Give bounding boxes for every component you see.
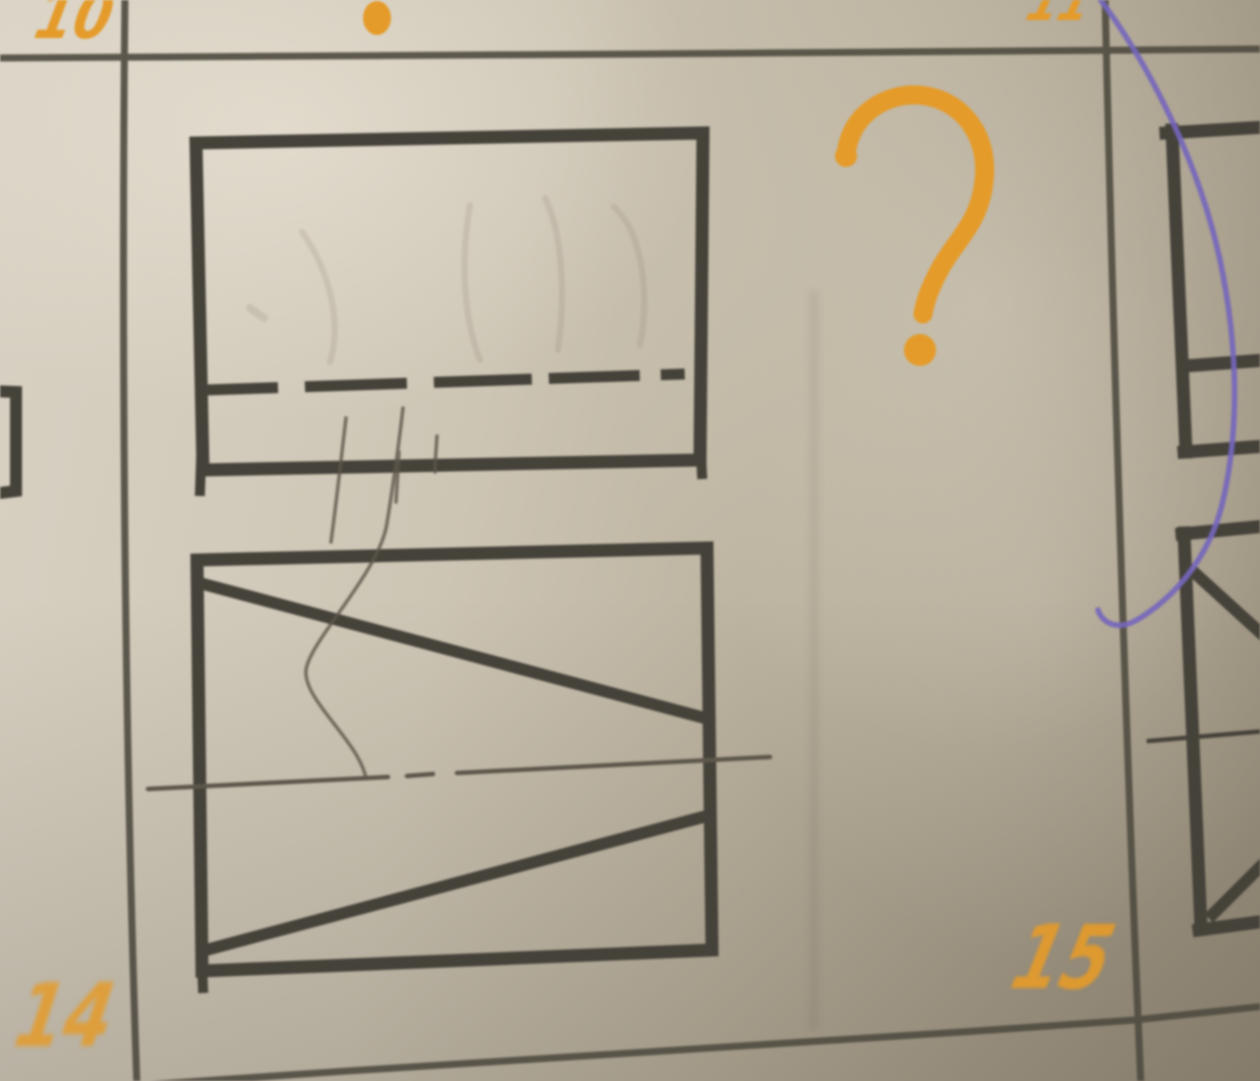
partial-diagonal-edge [1213,864,1260,914]
ghost-marks [250,198,644,362]
cell15-partial-top-drawing [1166,127,1260,452]
cell15-partial-front-drawing [1149,526,1260,930]
center-axis-line [148,757,770,789]
cell-number-14: 14 [8,964,122,1067]
cell14-front-view-drawing [197,548,712,988]
orange-annotations: 10 11 14 15 [8,0,1124,1067]
hidden-edge-dashed-line [206,374,685,390]
workbook-photo: 10 11 14 15 [0,0,1260,1081]
axis-segment [1149,731,1260,741]
cell14-top-view-drawing [196,133,703,491]
top-view-outline [196,133,703,470]
partial-diagonal-edge [1197,575,1260,636]
page-drawing-canvas: 10 11 14 15 [0,0,1260,1081]
partial-top-edge [1182,526,1260,534]
question-dot-above [363,1,391,35]
ghost-mark [545,198,562,350]
question-mark-stroke-blob [835,145,857,167]
question-mark-stroke [846,95,985,314]
front-view-outline [197,548,712,971]
axis-segment [457,757,770,773]
axis-dash [407,774,433,776]
cell-number-15: 15 [1003,906,1124,1009]
partial-left-edge [1184,533,1201,928]
partial-inner-edge [1185,360,1260,366]
partial-left-edge [1172,130,1186,452]
question-mark-dot [904,334,936,366]
grid-line-top [0,49,1260,58]
cell-number-11: 11 [1020,0,1099,33]
grid-line-left [124,0,138,1081]
question-mark-annotation [846,95,985,314]
axis-segment [148,777,388,789]
corner-overshoot [200,462,201,491]
lower-diagonal-edge [206,817,703,950]
ghost-mark [465,205,480,360]
upper-diagonal-edge [207,585,701,717]
ghost-mark [614,207,644,345]
grid-line-bottom [42,1006,1260,1081]
corner-overshoot [701,455,702,474]
short-pencil-stroke [331,418,346,542]
ghost-mark [302,232,335,362]
corner-overshoot [202,965,203,988]
short-pencil-stroke [435,436,437,472]
partial-bottom-edge [1184,446,1260,452]
partial-bottom-edge [1199,921,1260,930]
ghost-mark [250,308,264,318]
neighbor-cell-partial-drawing-left [0,391,16,494]
cell-number-10: 10 [29,0,121,54]
partial-box-edge [0,391,16,494]
